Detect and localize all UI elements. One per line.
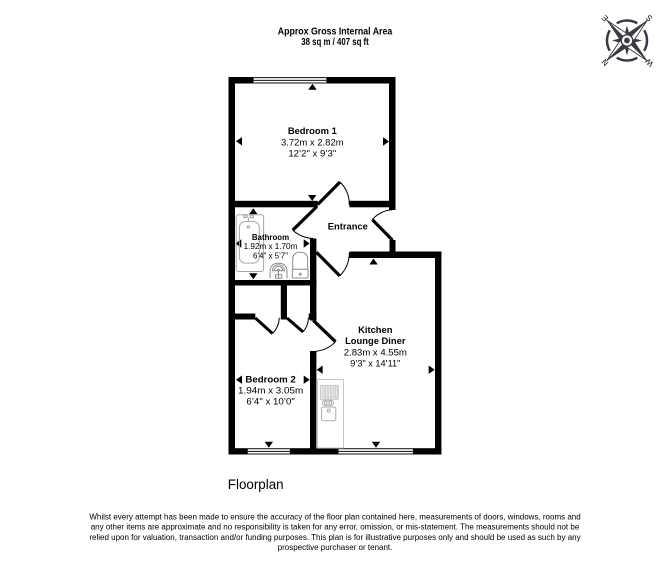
svg-text:any other items are approximat: any other items are approximate and no r… xyxy=(91,522,580,531)
svg-text:Bedroom 2: Bedroom 2 xyxy=(245,374,295,385)
svg-text:9’3" x 14’11": 9’3" x 14’11" xyxy=(350,357,400,368)
svg-text:2.83m x 4.55m: 2.83m x 4.55m xyxy=(344,346,407,357)
svg-text:Bedroom 1: Bedroom 1 xyxy=(288,125,337,136)
svg-text:3.72m x 2.82m: 3.72m x 2.82m xyxy=(281,136,344,147)
svg-text:6’4" x 10’0": 6’4" x 10’0" xyxy=(246,396,294,407)
svg-text:prospective purchaser or tenan: prospective purchaser or tenant. xyxy=(278,543,393,552)
svg-text:38 sq m / 407 sq ft: 38 sq m / 407 sq ft xyxy=(301,37,369,48)
svg-text:6’4" x 5’7": 6’4" x 5’7" xyxy=(253,251,288,260)
svg-text:relied upon for valuation, tra: relied upon for valuation, transaction a… xyxy=(89,533,580,542)
svg-text:12’2" x 9’3": 12’2" x 9’3" xyxy=(288,148,336,159)
svg-text:Floorplan: Floorplan xyxy=(228,477,284,492)
svg-text:1.92m x 1.70m: 1.92m x 1.70m xyxy=(244,242,298,251)
svg-text:Bathroom: Bathroom xyxy=(252,233,289,242)
svg-text:Lounge Diner: Lounge Diner xyxy=(345,335,406,346)
svg-text:Entrance: Entrance xyxy=(328,221,368,232)
svg-text:Whilst every attempt has been: Whilst every attempt has been made to en… xyxy=(89,512,580,521)
svg-text:Kitchen: Kitchen xyxy=(358,324,393,335)
svg-text:1.94m x 3.05m: 1.94m x 3.05m xyxy=(238,385,303,396)
